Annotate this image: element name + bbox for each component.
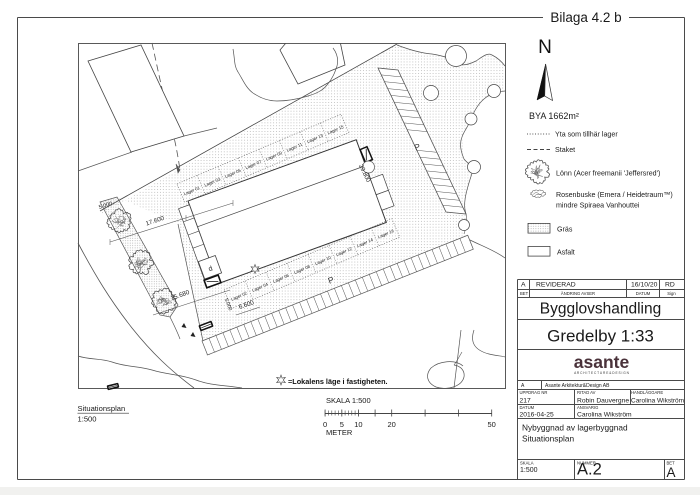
svg-text:=Lokalens läge i fastigheten.: =Lokalens läge i fastigheten. (288, 377, 388, 386)
svg-text:Carolina Wikström: Carolina Wikström (577, 412, 632, 419)
svg-text:Lönn (Acer freemanii 'Jeffersr: Lönn (Acer freemanii 'Jeffersred') (556, 170, 660, 178)
svg-text:RITAD AV: RITAD AV (577, 390, 596, 395)
svg-text:A R C H I T E C T U R E & D E: A R C H I T E C T U R E & D E S I G N (574, 371, 630, 375)
svg-text:Carolina Wikström: Carolina Wikström (631, 398, 684, 405)
svg-text:Asante Arkitektur&Design AB: Asante Arkitektur&Design AB (545, 383, 610, 389)
svg-text:Nybyggnad av lagerbyggnad: Nybyggnad av lagerbyggnad (522, 423, 628, 433)
svg-text:50: 50 (488, 420, 496, 429)
svg-text:Staket: Staket (555, 146, 575, 154)
svg-text:Bygglovshandling: Bygglovshandling (540, 301, 662, 318)
svg-text:A: A (521, 282, 526, 289)
svg-text:Yta som tillhär lager: Yta som tillhär lager (555, 131, 618, 139)
svg-text:SKALA: SKALA (520, 461, 534, 466)
svg-text:RD: RD (665, 282, 675, 289)
svg-text:Rosenbuske (Emera / Heidetraum: Rosenbuske (Emera / Heidetraum™) (556, 191, 673, 199)
svg-text:A.2: A.2 (577, 461, 602, 479)
svg-text:16/10/20: 16/10/20 (631, 282, 658, 289)
svg-text:mindre Spiraea Vanhouttei: mindre Spiraea Vanhouttei (556, 202, 640, 210)
svg-text:DATUM: DATUM (636, 291, 651, 296)
svg-text:2016-04-25: 2016-04-25 (520, 412, 554, 419)
svg-text:Gredelby 1:33: Gredelby 1:33 (547, 327, 654, 346)
svg-text:UPPDRAG NR: UPPDRAG NR (520, 390, 548, 395)
svg-text:asante: asante (574, 352, 630, 372)
svg-text:Robin Dauvergne: Robin Dauvergne (577, 398, 629, 405)
svg-text:SKALA 1:500: SKALA 1:500 (326, 396, 371, 405)
svg-text:Asfalt: Asfalt (557, 249, 575, 257)
svg-text:Situationsplan: Situationsplan (78, 404, 126, 413)
svg-text:1:500: 1:500 (520, 467, 538, 474)
svg-text:METER: METER (326, 428, 353, 437)
svg-text:DATUM: DATUM (520, 405, 535, 410)
svg-text:217: 217 (520, 398, 531, 405)
svg-text:N: N (538, 37, 552, 58)
svg-text:1:500: 1:500 (78, 415, 97, 424)
svg-text:ÄNDRING AVSER: ÄNDRING AVSER (561, 291, 595, 296)
svg-text:Sign: Sign (667, 291, 676, 296)
svg-text:Gräs: Gräs (557, 226, 573, 234)
svg-text:Situationsplan: Situationsplan (522, 434, 575, 444)
svg-text:BET: BET (520, 291, 529, 296)
svg-text:HANDLÄGGARE: HANDLÄGGARE (631, 390, 663, 395)
svg-text:A: A (667, 465, 676, 480)
svg-text:REVIDERAD: REVIDERAD (536, 282, 576, 289)
svg-text:BYA 1662m²: BYA 1662m² (529, 111, 579, 121)
svg-text:10: 10 (354, 420, 362, 429)
svg-text:Bilaga 4.2 b: Bilaga 4.2 b (550, 10, 621, 25)
svg-text:ANSVARIG: ANSVARIG (577, 405, 598, 410)
svg-text:20: 20 (388, 420, 396, 429)
